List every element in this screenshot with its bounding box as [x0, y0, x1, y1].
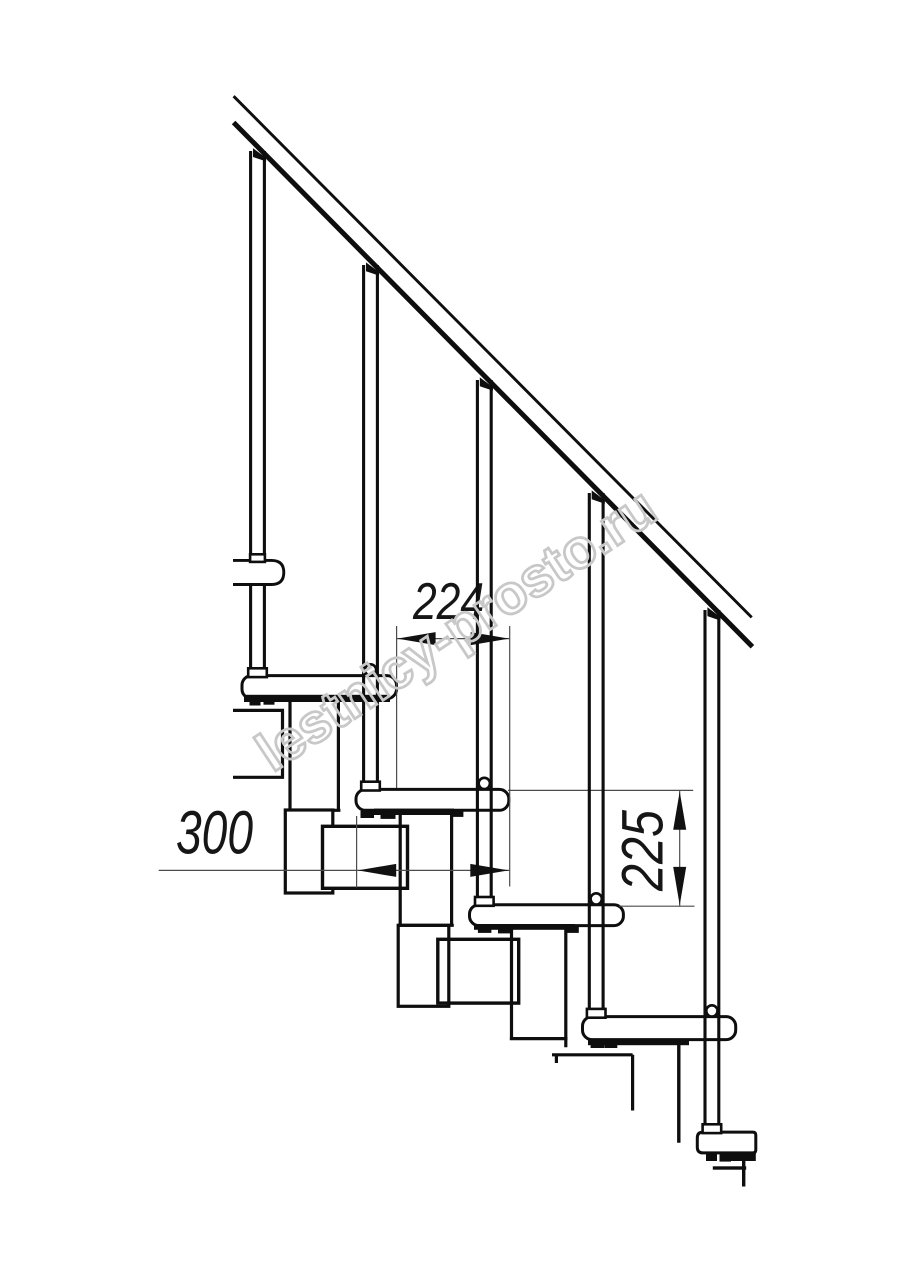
- svg-text:300: 300: [176, 799, 253, 867]
- svg-text:225: 225: [611, 809, 676, 891]
